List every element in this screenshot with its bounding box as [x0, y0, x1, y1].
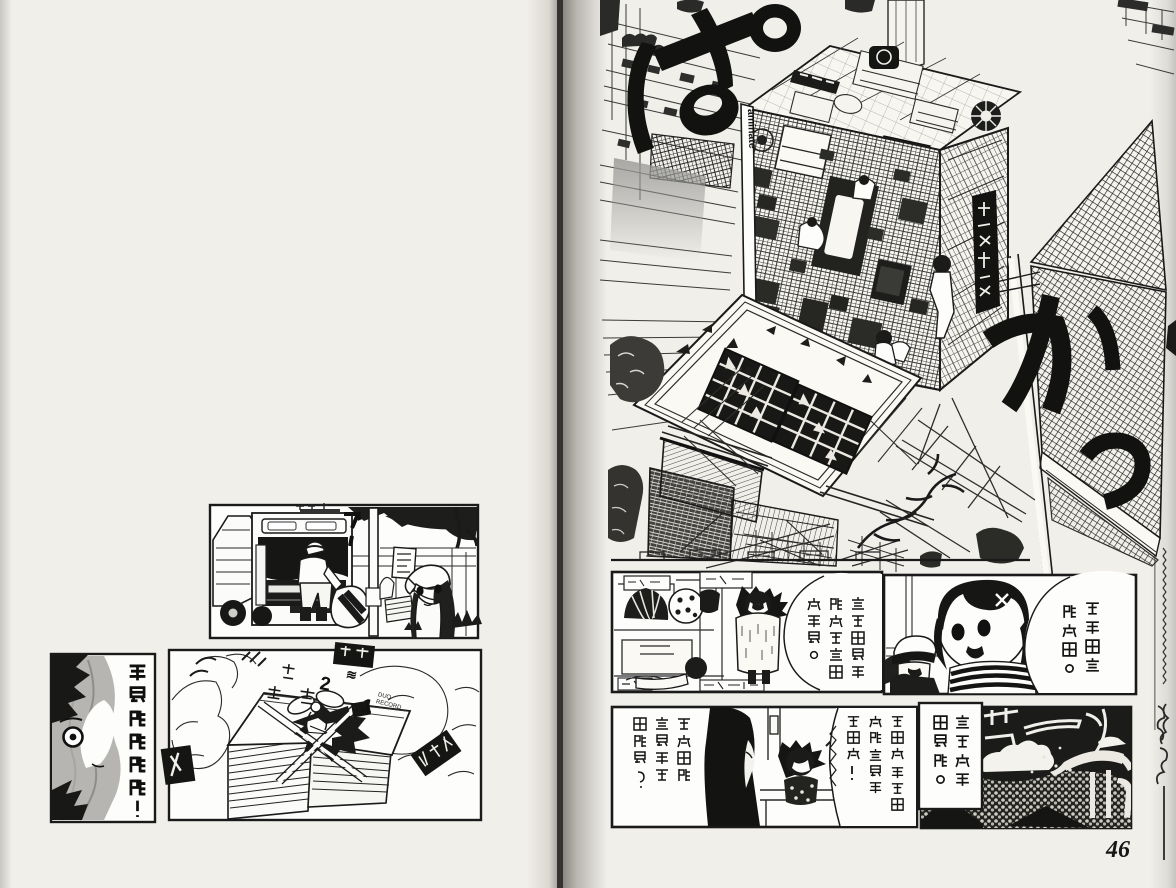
svg-text:aminate: aminate — [745, 109, 758, 149]
svg-text:46: 46 — [1105, 837, 1130, 863]
